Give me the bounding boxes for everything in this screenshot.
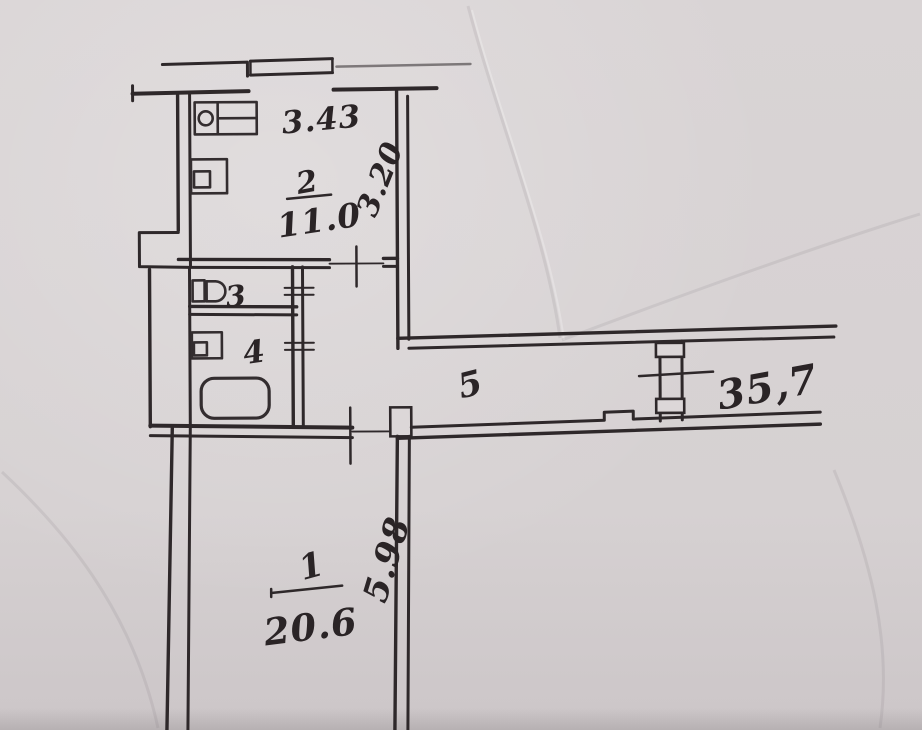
room-3-number: 3: [224, 278, 249, 314]
scanned-floor-plan-page: 3.43 3.20 2 11.0 3: [0, 0, 922, 730]
toilet-icon: [193, 280, 226, 301]
exterior-top-wall: [132, 58, 470, 101]
room-2-area: 11.0: [275, 195, 364, 246]
room-4-number: 4: [241, 333, 269, 372]
room-1-number: 1: [295, 544, 329, 589]
total-area-leader-line: [639, 372, 713, 376]
entry-door-icon: [656, 341, 684, 421]
bathtub-icon: [201, 378, 269, 418]
exterior-left-wall: [149, 267, 190, 426]
room-2-width-dim: 3.43: [280, 98, 363, 141]
room-2-kitchen-walls: [139, 90, 409, 349]
wall-pillar: [390, 407, 411, 436]
total-area-value: 35,7: [713, 355, 821, 419]
wall-niche: [139, 232, 189, 267]
kitchen-window-icon: [250, 59, 332, 75]
stove-icon: [191, 159, 227, 193]
room-1-area: 20.6: [260, 599, 360, 655]
floor-plan: 3.43 3.20 2 11.0 3: [132, 56, 838, 730]
room-5-number: 5: [454, 362, 488, 407]
kitchen-sink-icon: [195, 102, 257, 134]
floor-plan-canvas: 3.43 3.20 2 11.0 3: [0, 0, 922, 730]
wash-basin-icon: [192, 332, 222, 358]
